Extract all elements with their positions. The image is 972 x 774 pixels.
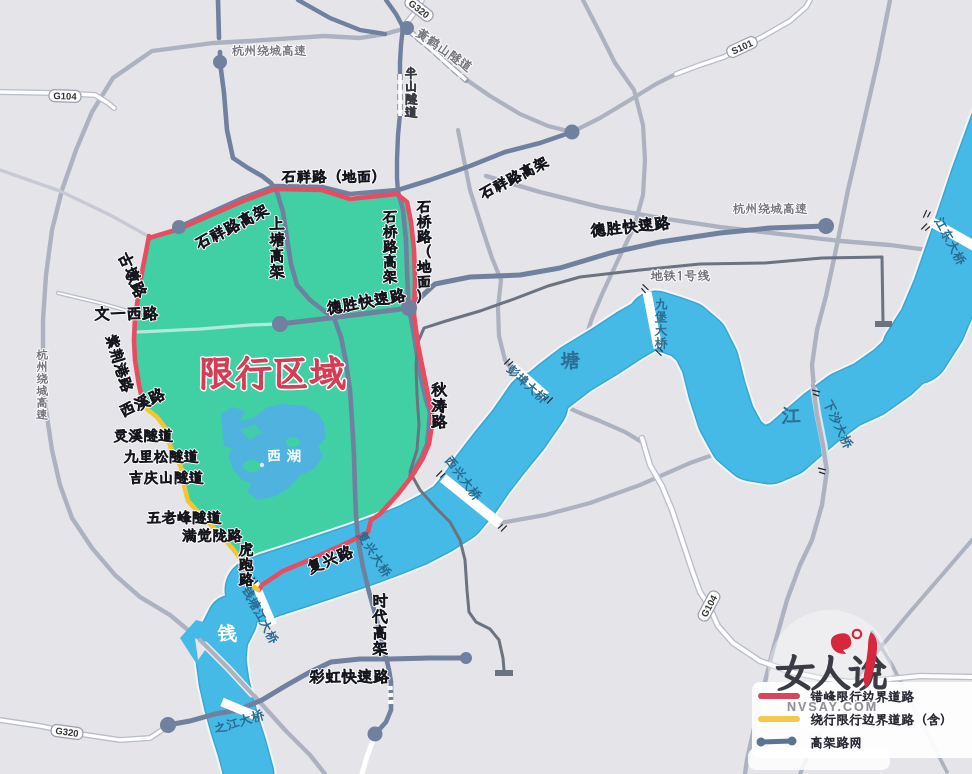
svg-text:NVSAY.COM: NVSAY.COM — [787, 700, 878, 714]
svg-text:G104: G104 — [53, 91, 77, 103]
